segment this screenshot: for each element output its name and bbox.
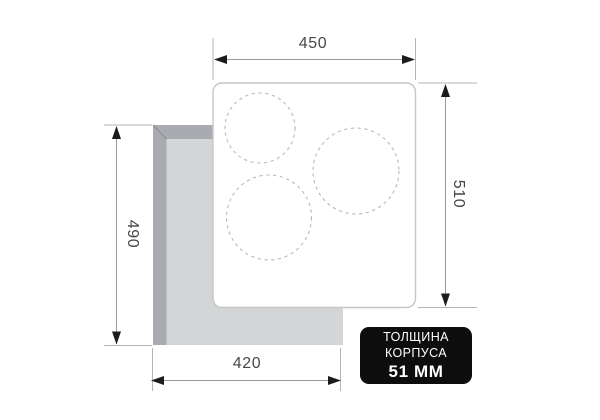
arrow-left-icon [214, 55, 227, 64]
arrow-down-icon [441, 294, 450, 307]
arrow-right-icon [402, 55, 415, 64]
arrow-right-icon [328, 376, 341, 385]
badge-line-2: КОРПУСА [360, 346, 472, 361]
badge-thickness-value: 51 ММ [360, 362, 472, 381]
arrow-up-icon [112, 126, 121, 139]
hob-installation-diagram: 450 510 490 420 ТОЛЩИНА КОРПУСА 51 ММ [0, 0, 600, 420]
drawing-layer [0, 0, 600, 420]
dimension-label-left: 490 [122, 202, 142, 266]
dimension-label-top: 450 [281, 34, 345, 54]
dimension-label-bottom: 420 [215, 354, 279, 374]
arrow-down-icon [112, 332, 121, 345]
badge-line-1: ТОЛЩИНА [360, 330, 472, 345]
hob-panel-outline [213, 83, 416, 308]
hob-panel [213, 83, 416, 308]
thickness-badge: ТОЛЩИНА КОРПУСА 51 ММ [360, 327, 472, 384]
arrow-up-icon [441, 84, 450, 97]
dimension-label-right: 510 [448, 162, 468, 226]
